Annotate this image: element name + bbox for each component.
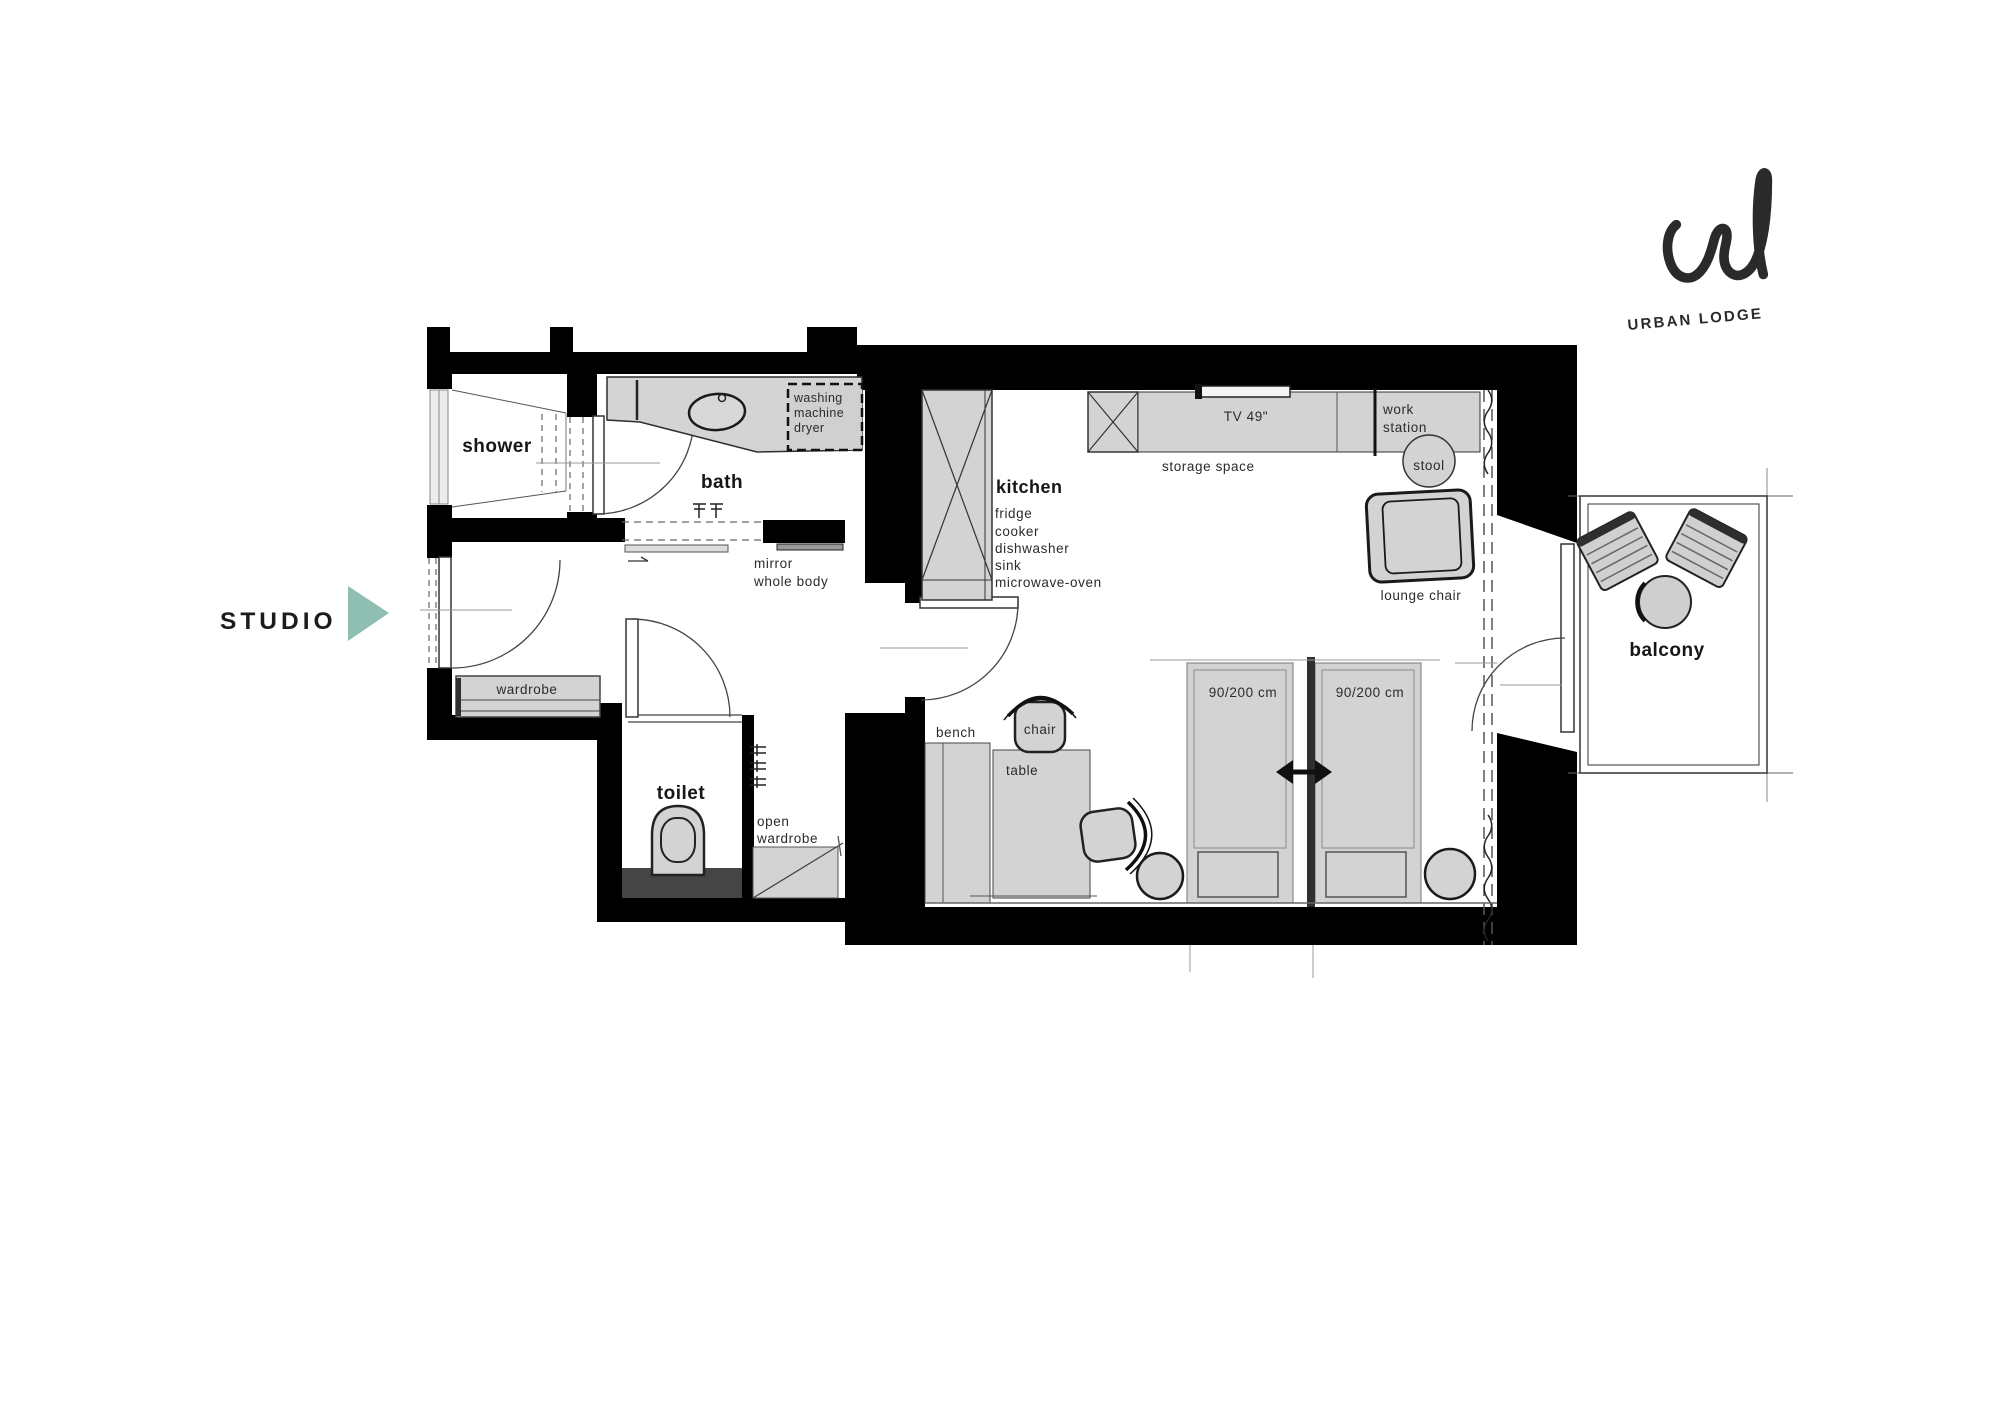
bed-2-pillow	[1326, 852, 1406, 897]
wall-segment	[427, 327, 450, 355]
floor-plan-canvas: shower bath toilet kitchen fridge cooker…	[0, 0, 2000, 1414]
shower-tray-line	[452, 390, 566, 413]
wall-segment	[597, 518, 625, 542]
mainroom-door-swing	[921, 603, 1018, 700]
bed-size-label: 90/200 cm	[1209, 685, 1277, 700]
wall-segment	[550, 327, 573, 355]
wall-segment	[597, 898, 845, 922]
wall-segment	[763, 520, 845, 543]
washing-machine-label: machine	[794, 406, 844, 420]
faucet-dot	[719, 395, 726, 402]
wall-segment	[427, 352, 865, 374]
tv-mount	[1195, 384, 1202, 399]
wall-segment	[857, 345, 1577, 390]
sliding-door-panel	[625, 545, 728, 552]
bed-1-pillow	[1198, 852, 1278, 897]
shower-tray-line	[452, 491, 566, 507]
studio-title: STUDIO	[220, 608, 337, 635]
entrance-door-swing	[452, 560, 560, 668]
chair-label: chair	[1024, 722, 1056, 737]
mirror-label: mirror	[754, 556, 793, 571]
wall-segment	[865, 374, 922, 583]
storage-space-label: storage space	[1162, 459, 1255, 474]
toilet-door-swing	[632, 619, 730, 717]
mirror-label: whole body	[753, 574, 828, 589]
hall-furniture	[456, 676, 843, 898]
wall-segment	[427, 715, 600, 740]
bed-size-label: 90/200 cm	[1336, 685, 1404, 700]
shower-window	[427, 389, 452, 505]
wall-segment	[597, 703, 622, 898]
kitchen-item: cooker	[995, 524, 1039, 539]
kitchen-item: microwave-oven	[995, 575, 1102, 590]
curtain-squiggle	[1484, 390, 1492, 474]
mirror-bar	[777, 544, 843, 550]
wall-segment	[905, 907, 1577, 945]
studio-arrow-icon	[348, 586, 389, 641]
stool-label: stool	[1413, 458, 1445, 473]
logo-ul-mark-icon	[1665, 173, 1771, 279]
room-label-toilet: toilet	[657, 783, 706, 804]
floor-plan: shower bath toilet kitchen fridge cooker…	[0, 0, 2000, 1414]
wall-pier-upper-right	[1497, 388, 1577, 543]
wall-segment	[742, 715, 754, 898]
room-label-balcony: balcony	[1629, 640, 1704, 661]
washing-machine-label: washing	[793, 391, 843, 405]
wardrobe-label: wardrobe	[495, 682, 557, 697]
pouf	[1137, 853, 1183, 899]
kitchen-item: fridge	[995, 506, 1032, 521]
studio-callout: STUDIO	[220, 586, 389, 641]
room-label-bath: bath	[701, 472, 743, 493]
room-label-shower: shower	[462, 436, 532, 457]
toilet-bowl	[652, 806, 704, 875]
kitchen-item: dishwasher	[995, 541, 1069, 556]
curtain-window	[1484, 390, 1492, 945]
brand-name: URBAN LODGE	[1627, 305, 1764, 334]
wardrobe-end-panel	[456, 678, 461, 716]
lounge-chair	[1366, 489, 1474, 582]
wall-segment	[427, 668, 452, 715]
room-label-kitchen: kitchen	[996, 477, 1063, 497]
bath-door-leaf	[593, 416, 604, 514]
table-label: table	[1006, 763, 1038, 778]
washing-machine-label: dryer	[794, 421, 824, 435]
entrance-door-leaf	[439, 557, 451, 668]
wall-segment	[807, 327, 857, 352]
wall-segment	[567, 512, 597, 542]
tv-label: TV 49"	[1224, 409, 1268, 424]
open-wardrobe-label: open	[757, 814, 789, 829]
work-station-label: work	[1382, 402, 1414, 417]
wall-segment	[567, 352, 597, 417]
tv-bar	[1197, 386, 1290, 397]
bed-divider	[1307, 657, 1315, 907]
wall-segment	[427, 352, 452, 389]
dining-chair-right	[1079, 807, 1137, 864]
brand-logo: URBAN LODGE	[1627, 173, 1771, 334]
balcony-table	[1639, 576, 1691, 628]
toilet-door-leaf	[626, 619, 638, 717]
open-wardrobe-label: wardrobe	[756, 831, 818, 846]
pouf	[1425, 849, 1475, 899]
kitchen-cabinet-column	[922, 390, 992, 600]
work-station-label: station	[1383, 420, 1427, 435]
kitchen-item: sink	[995, 558, 1021, 573]
balcony-area	[1568, 468, 1793, 802]
bench-box	[925, 743, 990, 903]
lounge-chair-label: lounge chair	[1381, 588, 1462, 603]
wall-segment	[427, 545, 452, 558]
bench-label: bench	[936, 725, 976, 740]
